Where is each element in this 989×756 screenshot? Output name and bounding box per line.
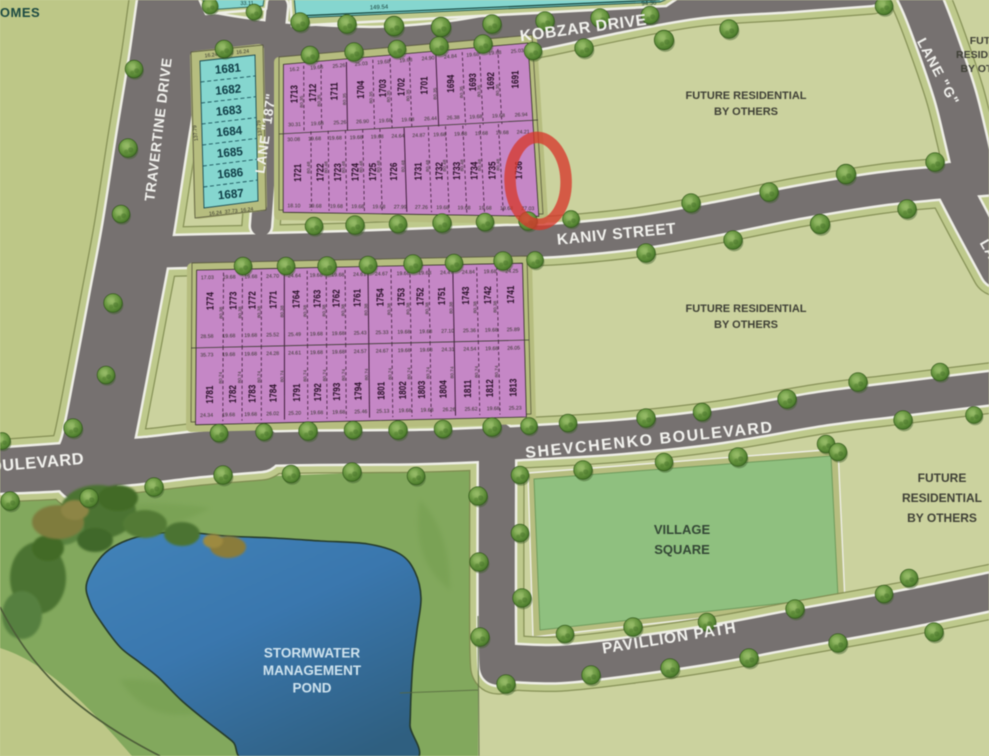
svg-text:19.68: 19.68	[330, 204, 343, 210]
svg-text:80.74: 80.74	[322, 369, 328, 381]
svg-text:19.68: 19.68	[310, 410, 323, 416]
svg-text:80.38: 80.38	[406, 302, 412, 314]
svg-text:80.38: 80.38	[449, 301, 455, 313]
svg-text:19.68: 19.68	[433, 132, 446, 138]
svg-text:19.68: 19.68	[371, 134, 384, 140]
svg-text:17.03: 17.03	[201, 275, 214, 281]
svg-text:26.26: 26.26	[443, 407, 456, 413]
svg-text:19.68: 19.68	[475, 131, 488, 137]
svg-text:16.2: 16.2	[289, 66, 300, 73]
svg-text:1794: 1794	[352, 382, 364, 400]
svg-text:80.74: 80.74	[218, 371, 224, 383]
svg-text:1782: 1782	[227, 385, 239, 403]
svg-text:26.94: 26.94	[515, 112, 528, 119]
svg-text:18.10: 18.10	[287, 203, 300, 209]
svg-text:BY OTHERS: BY OTHERS	[714, 319, 778, 331]
svg-text:19.68: 19.68	[419, 329, 432, 335]
svg-text:FUTURE RESIDENTIAL: FUTURE RESIDENTIAL	[686, 90, 807, 102]
svg-text:FUTURE: FUTURE	[970, 35, 989, 47]
svg-text:19.68: 19.68	[379, 118, 392, 125]
svg-text:1682: 1682	[215, 81, 243, 97]
svg-text:19.68: 19.68	[223, 274, 236, 280]
svg-text:80.38: 80.38	[279, 305, 285, 317]
svg-text:25.03: 25.03	[511, 48, 525, 55]
svg-text:80.48: 80.48	[306, 161, 312, 173]
svg-text:19.68: 19.68	[454, 131, 467, 137]
svg-text:19.68: 19.68	[222, 333, 235, 339]
svg-text:80.38: 80.38	[237, 306, 243, 318]
svg-text:80.38: 80.38	[387, 303, 393, 315]
svg-text:24.67: 24.67	[375, 271, 388, 277]
svg-text:1701: 1701	[418, 76, 430, 94]
svg-text:1726: 1726	[388, 162, 400, 180]
svg-text:24.84: 24.84	[462, 269, 475, 275]
svg-text:19.68: 19.68	[397, 329, 410, 335]
svg-text:19.68: 19.68	[469, 114, 482, 121]
svg-text:19.68: 19.68	[484, 269, 497, 275]
svg-text:STORMWATER: STORMWATER	[264, 646, 360, 661]
svg-text:80.38: 80.38	[340, 304, 346, 316]
svg-text:1743: 1743	[460, 286, 472, 304]
svg-text:1781: 1781	[204, 385, 216, 403]
svg-text:25.46: 25.46	[354, 409, 367, 415]
svg-text:1713: 1713	[288, 85, 300, 103]
svg-text:19.68: 19.68	[485, 346, 498, 352]
svg-text:1803: 1803	[416, 381, 428, 399]
svg-text:1811: 1811	[462, 380, 474, 398]
svg-text:19.68: 19.68	[310, 331, 323, 337]
svg-text:HOMES: HOMES	[0, 5, 40, 20]
svg-text:1731: 1731	[412, 162, 424, 180]
svg-text:19.68: 19.68	[244, 351, 257, 357]
svg-text:FUTURE RESIDENTIAL: FUTURE RESIDENTIAL	[686, 303, 807, 315]
svg-text:80.48: 80.48	[400, 160, 406, 172]
svg-text:24.90: 24.90	[421, 55, 435, 62]
svg-text:1686: 1686	[217, 165, 245, 181]
svg-text:30.08: 30.08	[287, 137, 300, 143]
svg-text:1771: 1771	[268, 291, 280, 309]
svg-text:19.68: 19.68	[332, 410, 345, 416]
svg-text:80.35: 80.35	[316, 94, 322, 106]
svg-text:MANAGEMENT: MANAGEMENT	[263, 663, 362, 678]
svg-text:26.05: 26.05	[507, 345, 520, 351]
svg-text:19.68: 19.68	[244, 412, 257, 418]
svg-text:26.90: 26.90	[356, 119, 369, 126]
svg-text:80.74: 80.74	[450, 366, 456, 378]
svg-text:80.48: 80.48	[496, 158, 502, 170]
svg-text:1792: 1792	[312, 383, 324, 401]
svg-text:1793: 1793	[331, 383, 343, 401]
svg-text:1687: 1687	[217, 186, 245, 202]
svg-text:25.52: 25.52	[266, 332, 279, 338]
svg-text:80.38: 80.38	[473, 301, 479, 313]
svg-text:19.68: 19.68	[487, 406, 500, 412]
svg-text:1681: 1681	[214, 60, 242, 76]
svg-text:19.68: 19.68	[351, 204, 364, 210]
svg-text:26.38: 26.38	[447, 115, 460, 122]
svg-text:80.48: 80.48	[324, 161, 330, 173]
svg-text:1691: 1691	[510, 70, 522, 88]
svg-text:24.54: 24.54	[463, 346, 476, 352]
svg-text:1812: 1812	[484, 379, 496, 397]
svg-text:80.35: 80.35	[459, 86, 465, 98]
svg-text:80.38: 80.38	[321, 304, 327, 316]
svg-text:RESIDENTIAL: RESIDENTIAL	[956, 49, 989, 61]
svg-text:19.68: 19.68	[372, 204, 385, 210]
svg-text:19.68: 19.68	[350, 135, 363, 141]
svg-text:1741: 1741	[505, 285, 517, 303]
svg-text:80.35: 80.35	[299, 95, 305, 107]
svg-text:BY OTHERS: BY OTHERS	[714, 106, 778, 118]
svg-text:19.68: 19.68	[222, 352, 235, 358]
svg-text:80.35: 80.35	[386, 90, 392, 102]
svg-text:1742: 1742	[482, 286, 494, 304]
svg-text:1813: 1813	[507, 378, 519, 396]
svg-text:80.48: 80.48	[359, 160, 365, 172]
svg-text:80.74: 80.74	[387, 368, 393, 380]
svg-text:19.68: 19.68	[436, 205, 449, 211]
svg-text:19.68: 19.68	[496, 130, 509, 136]
svg-text:80.48: 80.48	[442, 159, 448, 171]
svg-text:POND: POND	[292, 681, 331, 696]
svg-text:80.48: 80.48	[460, 159, 466, 171]
svg-text:80.38: 80.38	[425, 302, 431, 314]
svg-text:FUTURE: FUTURE	[918, 471, 967, 485]
svg-text:80.74: 80.74	[426, 367, 432, 379]
svg-text:24.57: 24.57	[354, 349, 367, 355]
svg-text:1791: 1791	[291, 383, 303, 401]
svg-text:25.36: 25.36	[463, 328, 476, 334]
svg-text:24.61: 24.61	[288, 350, 301, 356]
svg-text:25.13: 25.13	[376, 409, 389, 415]
svg-text:80.74: 80.74	[303, 369, 309, 381]
svg-text:80.48: 80.48	[477, 159, 483, 171]
svg-text:19.68: 19.68	[398, 348, 411, 354]
svg-text:24.67: 24.67	[376, 348, 389, 354]
svg-text:19.68: 19.68	[401, 117, 414, 124]
svg-text:19.68: 19.68	[332, 331, 345, 337]
svg-text:25.49: 25.49	[288, 332, 301, 338]
svg-text:27.10: 27.10	[441, 328, 454, 334]
svg-text:19.68: 19.68	[485, 327, 498, 333]
svg-text:1721: 1721	[292, 164, 304, 182]
svg-text:80.38: 80.38	[218, 306, 224, 318]
svg-text:1754: 1754	[375, 288, 387, 306]
svg-text:1801: 1801	[376, 382, 388, 400]
svg-text:80.74: 80.74	[280, 370, 286, 382]
svg-text:19.68: 19.68	[398, 408, 411, 414]
svg-text:24.31: 24.31	[441, 347, 454, 353]
svg-text:35.73: 35.73	[200, 352, 213, 358]
svg-text:25.26: 25.26	[332, 63, 346, 70]
svg-text:19.68: 19.68	[377, 59, 391, 66]
svg-text:80.35: 80.35	[369, 91, 375, 103]
svg-text:1685: 1685	[216, 144, 244, 160]
svg-text:24.70: 24.70	[266, 274, 279, 280]
svg-text:149.54: 149.54	[370, 5, 389, 12]
svg-text:19.68: 19.68	[457, 205, 470, 211]
svg-text:19.68: 19.68	[310, 350, 323, 356]
svg-text:80.74: 80.74	[256, 371, 262, 383]
svg-text:1774: 1774	[205, 292, 217, 310]
svg-text:VILLAGE: VILLAGE	[654, 522, 711, 537]
svg-text:80.38: 80.38	[493, 300, 499, 312]
svg-text:80.74: 80.74	[406, 367, 412, 379]
svg-text:80.74: 80.74	[474, 366, 480, 378]
svg-text:26.02: 26.02	[266, 411, 279, 417]
svg-text:24.87: 24.87	[412, 133, 425, 139]
svg-text:25.33: 25.33	[375, 330, 388, 336]
svg-text:80.38: 80.38	[363, 303, 369, 315]
svg-text:19.68: 19.68	[222, 412, 235, 418]
svg-text:1694: 1694	[445, 75, 457, 93]
svg-text:19.68: 19.68	[311, 121, 324, 128]
svg-text:1684: 1684	[216, 123, 244, 139]
svg-text:27.26: 27.26	[415, 205, 428, 211]
svg-text:BY OTHERS: BY OTHERS	[960, 63, 989, 75]
svg-text:1702: 1702	[395, 78, 407, 96]
svg-text:24.34: 24.34	[200, 413, 213, 419]
svg-text:1802: 1802	[397, 381, 409, 399]
svg-text:25.89: 25.89	[507, 327, 520, 333]
svg-text:19.68: 19.68	[466, 52, 480, 59]
svg-text:80.35: 80.35	[342, 93, 348, 105]
svg-text:1764: 1764	[291, 290, 303, 308]
svg-text:19.68: 19.68	[244, 333, 257, 339]
svg-text:25.62: 25.62	[465, 406, 478, 412]
svg-text:26.44: 26.44	[424, 116, 437, 123]
svg-text:27.99: 27.99	[394, 205, 407, 211]
svg-text:1761: 1761	[352, 289, 364, 307]
svg-text:19.68: 19.68	[420, 347, 433, 353]
svg-text:80.48: 80.48	[341, 161, 347, 173]
svg-text:1711: 1711	[329, 82, 341, 100]
svg-text:28.58: 28.58	[200, 334, 213, 340]
svg-text:19.68: 19.68	[332, 349, 345, 355]
svg-text:80.48: 80.48	[425, 160, 431, 172]
svg-text:25.23: 25.23	[509, 405, 522, 411]
svg-text:80.48: 80.48	[376, 160, 382, 172]
svg-text:80.74: 80.74	[341, 369, 347, 381]
svg-text:19.68: 19.68	[420, 407, 433, 413]
svg-text:RESIDENTIAL: RESIDENTIAL	[902, 491, 982, 505]
svg-text:30.31: 30.31	[288, 122, 301, 129]
svg-text:BY OTHERS: BY OTHERS	[907, 511, 977, 525]
svg-text:25.20: 25.20	[288, 411, 301, 417]
svg-text:24.64: 24.64	[391, 133, 404, 139]
svg-text:SQUARE: SQUARE	[654, 542, 710, 557]
svg-text:19.68: 19.68	[308, 136, 321, 142]
svg-text:19.68: 19.68	[329, 135, 342, 141]
svg-text:80.74: 80.74	[237, 371, 243, 383]
svg-text:80.35: 80.35	[495, 84, 501, 96]
svg-text:1751: 1751	[436, 287, 448, 305]
svg-text:24.28: 24.28	[266, 351, 279, 357]
svg-text:1784: 1784	[268, 384, 280, 402]
svg-text:25.43: 25.43	[354, 330, 367, 336]
svg-text:1683: 1683	[215, 102, 243, 118]
svg-text:80.38: 80.38	[256, 306, 262, 318]
svg-text:1804: 1804	[438, 380, 450, 398]
svg-text:80.35: 80.35	[406, 89, 412, 101]
svg-text:25.26: 25.26	[333, 120, 346, 127]
svg-text:80.35: 80.35	[477, 85, 483, 97]
svg-text:1704: 1704	[355, 81, 367, 99]
svg-text:80.38: 80.38	[302, 305, 308, 317]
svg-text:80.74: 80.74	[494, 365, 500, 377]
svg-text:1783: 1783	[246, 385, 258, 403]
svg-text:80.74: 80.74	[364, 368, 370, 380]
svg-text:80.35: 80.35	[432, 87, 438, 99]
svg-text:19.68: 19.68	[309, 204, 322, 210]
svg-text:19.68: 19.68	[479, 206, 492, 212]
svg-text:19.68: 19.68	[492, 113, 505, 120]
